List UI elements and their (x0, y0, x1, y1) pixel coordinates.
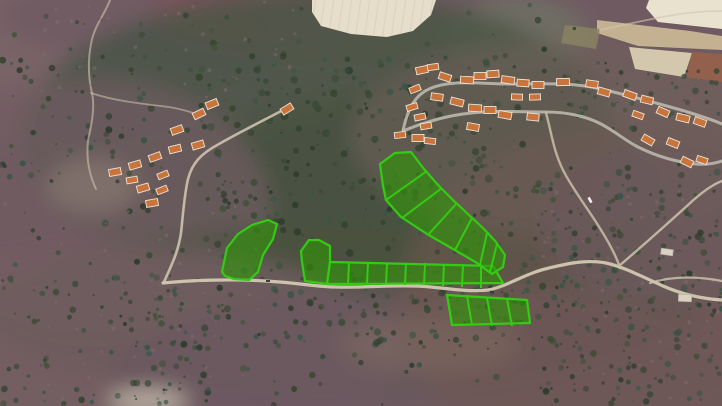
tree (632, 187, 637, 192)
tree (449, 131, 455, 137)
satellite-map[interactable] (0, 0, 722, 406)
tree (200, 372, 207, 379)
scrub-dot (58, 86, 62, 90)
tree (293, 148, 299, 154)
tree (241, 180, 245, 184)
scrub-dot (587, 334, 589, 336)
tree (148, 311, 151, 314)
scrub-dot (148, 191, 152, 195)
tree (11, 153, 13, 155)
tree (40, 364, 42, 366)
tree (228, 292, 233, 297)
tree (68, 148, 73, 153)
tree (697, 303, 702, 308)
parcel-divider (424, 263, 425, 285)
tree (307, 153, 310, 156)
tree (30, 130, 35, 135)
scrub-dot (684, 381, 688, 385)
tree (659, 197, 665, 203)
scrub-dot (164, 233, 168, 237)
tree (157, 295, 163, 301)
tree (269, 190, 273, 194)
tree (475, 379, 479, 383)
tree (55, 143, 57, 145)
tree (466, 10, 472, 16)
tree (604, 181, 611, 188)
tree (597, 281, 600, 284)
tree (572, 293, 574, 295)
tree (385, 245, 391, 251)
tree (198, 103, 204, 109)
tree (514, 104, 521, 111)
tree (103, 132, 109, 138)
tree (479, 164, 484, 169)
tree (135, 345, 137, 347)
tree (659, 190, 664, 195)
tree (709, 80, 714, 85)
scrub-dot (547, 237, 549, 239)
tree (280, 132, 282, 134)
tree (409, 294, 414, 299)
tree (610, 226, 616, 232)
tree (100, 305, 103, 308)
scrub-dot (100, 314, 103, 317)
scrub-dot (263, 1, 266, 4)
tree (141, 137, 147, 143)
tree (154, 298, 157, 301)
tree (365, 91, 372, 98)
tree (300, 7, 304, 11)
tree (568, 226, 571, 229)
tree (32, 319, 38, 325)
tree (18, 58, 23, 63)
tree (156, 308, 160, 312)
parcel-divider (386, 263, 387, 284)
tree (717, 112, 721, 116)
scrub-dot (543, 241, 546, 244)
tree (624, 83, 629, 88)
tree (127, 171, 133, 177)
tree (297, 335, 303, 341)
scrub-dot (281, 38, 284, 41)
tree (83, 23, 85, 25)
tree (302, 320, 308, 326)
tree (268, 104, 271, 107)
tree (681, 74, 686, 79)
tree (39, 291, 45, 297)
tree (686, 271, 693, 278)
tree (374, 328, 381, 335)
tree (139, 32, 145, 38)
tree (387, 88, 394, 95)
tree (75, 20, 79, 24)
tree (705, 100, 710, 105)
tree (226, 206, 230, 210)
parcel-group-flag-parcel[interactable] (301, 240, 330, 284)
tree (222, 198, 228, 204)
tree (489, 127, 492, 130)
tree (153, 316, 158, 321)
tree (526, 280, 531, 285)
tree (52, 115, 55, 118)
tree (184, 330, 188, 334)
scrub-dot (681, 198, 684, 201)
tree (243, 200, 250, 207)
tree (404, 63, 410, 69)
tree (187, 67, 193, 73)
tree (144, 345, 150, 351)
tree (320, 354, 325, 359)
tree (616, 101, 618, 103)
tree (236, 68, 242, 74)
car-dark-1 (266, 280, 270, 282)
tree (142, 118, 146, 122)
tree (707, 358, 712, 363)
tree (487, 348, 489, 350)
scrub-dot (83, 363, 85, 365)
tree (295, 88, 302, 95)
tree (191, 24, 194, 27)
tree (69, 47, 73, 51)
tree (198, 66, 205, 73)
tree (553, 58, 557, 62)
tree (165, 389, 167, 391)
tree (570, 192, 573, 195)
tree (705, 260, 711, 266)
scrub-dot (100, 350, 103, 353)
scrub-dot (82, 55, 84, 57)
tree (146, 351, 152, 357)
tree (543, 388, 550, 395)
tree (614, 320, 616, 322)
scrub-dot (177, 328, 181, 332)
tree (431, 55, 433, 57)
tree (484, 164, 488, 168)
tree (244, 343, 249, 348)
tree (434, 330, 437, 333)
tree (677, 163, 681, 167)
tree (582, 89, 586, 93)
parcel-outline-mid-row-parcels[interactable] (327, 262, 503, 284)
parcel-group-mid-row-parcels[interactable] (327, 262, 503, 288)
tree (78, 349, 82, 353)
house (487, 70, 499, 78)
tree (221, 309, 224, 312)
tree (471, 175, 475, 179)
tree (636, 386, 641, 391)
tree (513, 186, 519, 192)
house (501, 76, 515, 85)
parcel-divider (405, 263, 406, 285)
tree (616, 169, 623, 176)
tree (623, 350, 625, 352)
tree (220, 336, 223, 339)
scrub-dot (551, 210, 554, 213)
scrub-dot (639, 364, 642, 367)
parcel-divider (348, 262, 349, 284)
tree (495, 342, 498, 345)
tree (714, 80, 719, 85)
scrub-dot (669, 396, 672, 399)
tree (273, 302, 278, 307)
tree (162, 316, 164, 318)
tree (628, 324, 635, 331)
tree (685, 100, 690, 105)
tree (353, 320, 358, 325)
tree (165, 49, 168, 52)
tree (345, 57, 351, 63)
tree (643, 398, 649, 404)
tree (159, 360, 166, 367)
tree (332, 75, 340, 83)
scrub-dot (191, 5, 195, 9)
tree (247, 38, 252, 43)
tree (183, 13, 189, 19)
scrub-dot (40, 89, 43, 92)
parcel-outline-flag-parcel[interactable] (301, 240, 330, 284)
tree (207, 83, 211, 87)
tree (573, 383, 575, 385)
tree (337, 313, 342, 318)
tree (274, 391, 278, 395)
tree (535, 264, 537, 266)
scrub-dot (133, 355, 136, 358)
tree (365, 208, 367, 210)
tree (169, 325, 173, 329)
scrub-dot (219, 193, 222, 196)
tree (170, 341, 176, 347)
tree (116, 179, 120, 183)
tree (291, 68, 297, 74)
tree (552, 238, 558, 244)
scrub-dot (158, 238, 161, 241)
tree (473, 157, 475, 159)
tree (131, 73, 133, 75)
tree (563, 329, 569, 335)
scrub-dot (209, 375, 212, 378)
tree (14, 364, 20, 370)
scrub-dot (659, 214, 661, 216)
tree (190, 363, 192, 365)
tree (123, 322, 127, 326)
tree (310, 146, 315, 151)
scrub-dot (257, 308, 259, 310)
tree (67, 155, 69, 157)
scrub-dot (48, 326, 50, 328)
scrub-dot (33, 287, 37, 291)
tree (23, 387, 27, 391)
tree (329, 325, 331, 327)
tree (592, 226, 597, 231)
scrub-dot (164, 13, 167, 16)
tree (453, 353, 456, 356)
tree (284, 165, 290, 171)
tree (150, 273, 155, 278)
tree (352, 352, 357, 357)
tree (511, 289, 513, 291)
tree (717, 371, 722, 376)
tree (483, 100, 485, 102)
tree (424, 298, 428, 302)
tree (205, 399, 208, 402)
tree (203, 333, 207, 337)
tree (259, 90, 266, 97)
scrub-dot (159, 367, 162, 370)
tree (359, 189, 362, 192)
tree (629, 316, 632, 319)
tree (141, 91, 146, 96)
tree (347, 69, 349, 71)
tree (198, 380, 203, 385)
tree (1, 279, 4, 282)
tree (134, 395, 136, 397)
tree (378, 108, 383, 113)
house (420, 122, 432, 130)
tree (623, 108, 627, 112)
tree (214, 241, 221, 248)
tree (625, 165, 631, 171)
tree (109, 350, 114, 355)
tree (316, 130, 320, 134)
house (474, 73, 486, 80)
tree (94, 140, 96, 142)
tree (43, 358, 47, 362)
tree (542, 232, 544, 234)
tree (539, 387, 542, 390)
parcel-group-lower-right-row[interactable] (447, 295, 530, 326)
tree (665, 361, 672, 368)
tree (551, 231, 556, 236)
scrub-dot (640, 216, 643, 219)
tree (56, 250, 61, 255)
tree (596, 234, 598, 236)
scrub-dot (61, 397, 64, 400)
scrub-dot (692, 273, 695, 276)
tree (617, 368, 622, 373)
house (424, 137, 436, 144)
tree (196, 74, 203, 81)
tree (561, 91, 564, 94)
tree (50, 179, 54, 183)
tree (206, 387, 210, 391)
tree (462, 189, 468, 195)
house (412, 135, 424, 142)
tree (222, 79, 226, 83)
tree (137, 95, 144, 102)
tree (539, 283, 546, 290)
tree (630, 218, 633, 221)
tree (698, 236, 705, 243)
tree (180, 302, 184, 306)
tree (110, 149, 116, 155)
scrub-dot (113, 31, 115, 33)
tree (712, 189, 715, 192)
tree (669, 234, 673, 238)
tree (206, 197, 210, 201)
tree (160, 166, 163, 169)
tree (593, 95, 597, 99)
tree (234, 199, 239, 204)
house (145, 199, 158, 208)
tree (122, 226, 125, 229)
tree (439, 306, 443, 310)
tree (674, 337, 680, 343)
tree (201, 324, 208, 331)
tree (1, 161, 6, 166)
tree (256, 64, 261, 69)
tree (563, 280, 566, 283)
tree (216, 172, 221, 177)
tree (687, 333, 691, 337)
tree (92, 394, 95, 397)
tree (707, 303, 711, 307)
tree (298, 289, 304, 295)
house (427, 63, 439, 70)
tree (640, 267, 642, 269)
tree (550, 387, 553, 390)
tree (631, 400, 633, 402)
scrub-dot (26, 281, 28, 283)
tree (280, 227, 286, 233)
tree (540, 187, 547, 194)
satellite-map-viewport[interactable] (0, 0, 722, 406)
tree (484, 211, 487, 214)
tree (180, 341, 187, 348)
scrub-dot (563, 271, 565, 273)
tree (249, 53, 255, 59)
tree (9, 144, 13, 148)
tree (678, 172, 685, 179)
tree (354, 332, 359, 337)
tree (318, 382, 322, 386)
tree (517, 338, 520, 341)
tree (313, 297, 317, 301)
outbuilding (661, 248, 674, 256)
tree (522, 292, 524, 294)
tree (493, 160, 495, 162)
tree (220, 205, 227, 212)
tree (123, 281, 125, 283)
tree (531, 346, 535, 350)
tree (171, 250, 175, 254)
tree (542, 69, 547, 74)
tree (78, 397, 85, 404)
tree (587, 91, 591, 95)
tree (377, 59, 383, 65)
tree (662, 255, 665, 258)
tree (565, 309, 568, 312)
tree (281, 216, 284, 219)
tree (28, 172, 34, 178)
tree (446, 136, 450, 140)
tree (425, 41, 431, 47)
tree (558, 365, 564, 371)
tree (625, 306, 632, 313)
tree (500, 166, 503, 169)
tree (276, 343, 281, 348)
tree (509, 221, 514, 226)
tree (229, 105, 235, 111)
tree (357, 108, 364, 115)
tree (473, 214, 476, 217)
tree (417, 362, 422, 367)
tree (383, 311, 388, 316)
tree (438, 132, 442, 136)
tree (705, 91, 708, 94)
tree (674, 85, 678, 89)
tree (309, 173, 313, 177)
tree (40, 104, 45, 109)
